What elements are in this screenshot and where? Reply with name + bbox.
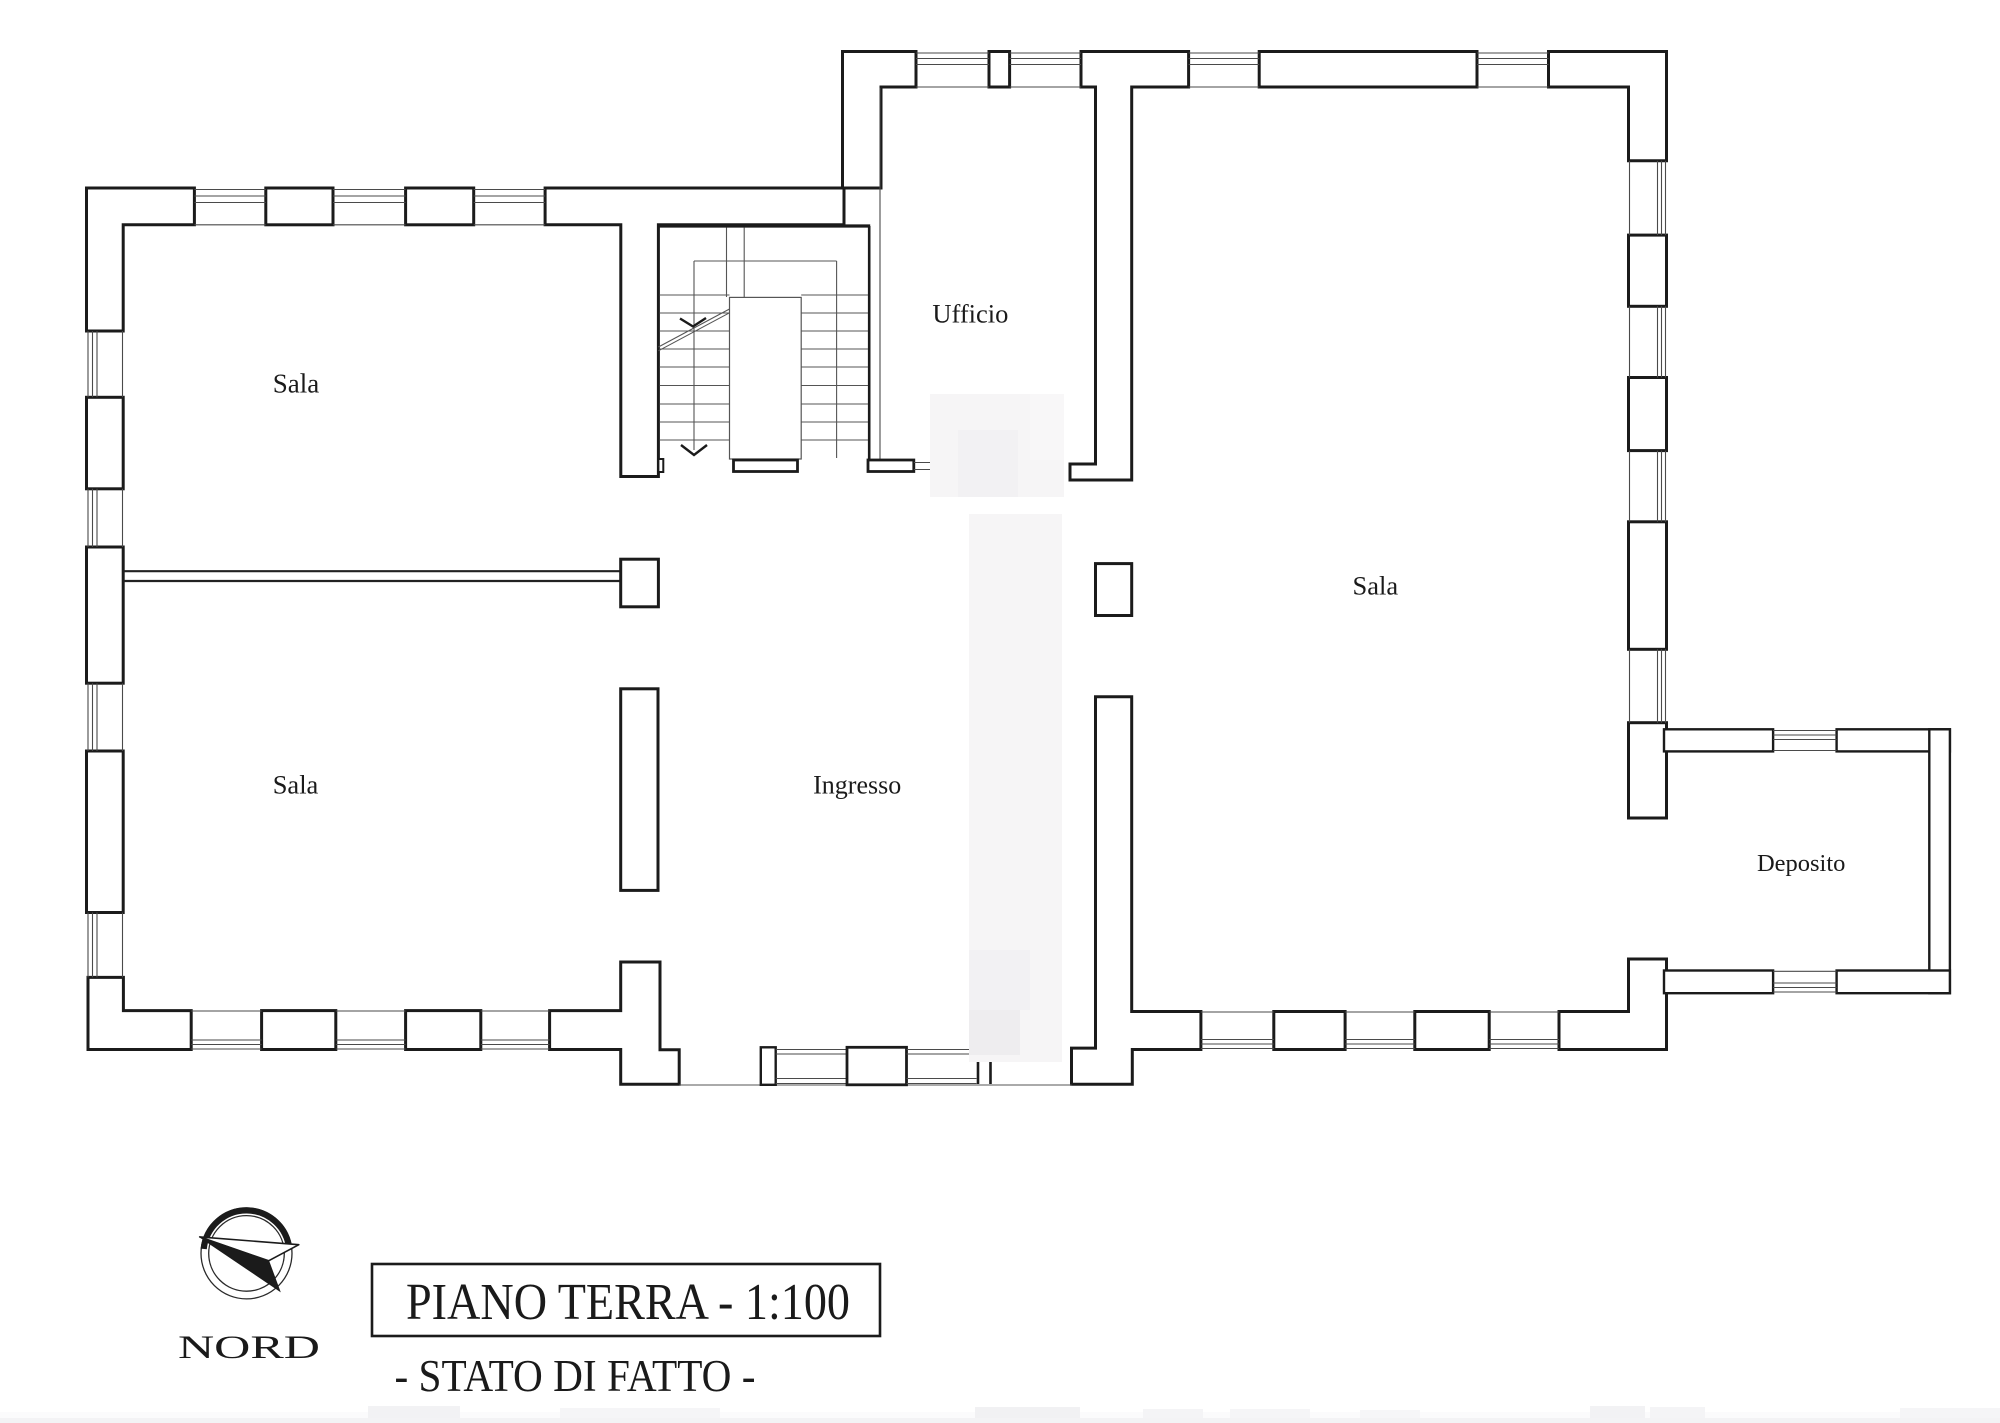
svg-text:Sala: Sala xyxy=(273,369,320,399)
svg-text:Deposito: Deposito xyxy=(1757,850,1845,877)
svg-text:NORD: NORD xyxy=(178,1330,320,1366)
svg-text:PIANO TERRA - 1:100: PIANO TERRA - 1:100 xyxy=(406,1274,850,1331)
svg-text:Ingresso: Ingresso xyxy=(813,771,901,800)
svg-text:Ufficio: Ufficio xyxy=(932,299,1008,329)
svg-text:- STATO DI FATTO -: - STATO DI FATTO - xyxy=(395,1351,756,1401)
svg-text:Sala: Sala xyxy=(1352,571,1398,601)
svg-text:Sala: Sala xyxy=(273,770,319,800)
